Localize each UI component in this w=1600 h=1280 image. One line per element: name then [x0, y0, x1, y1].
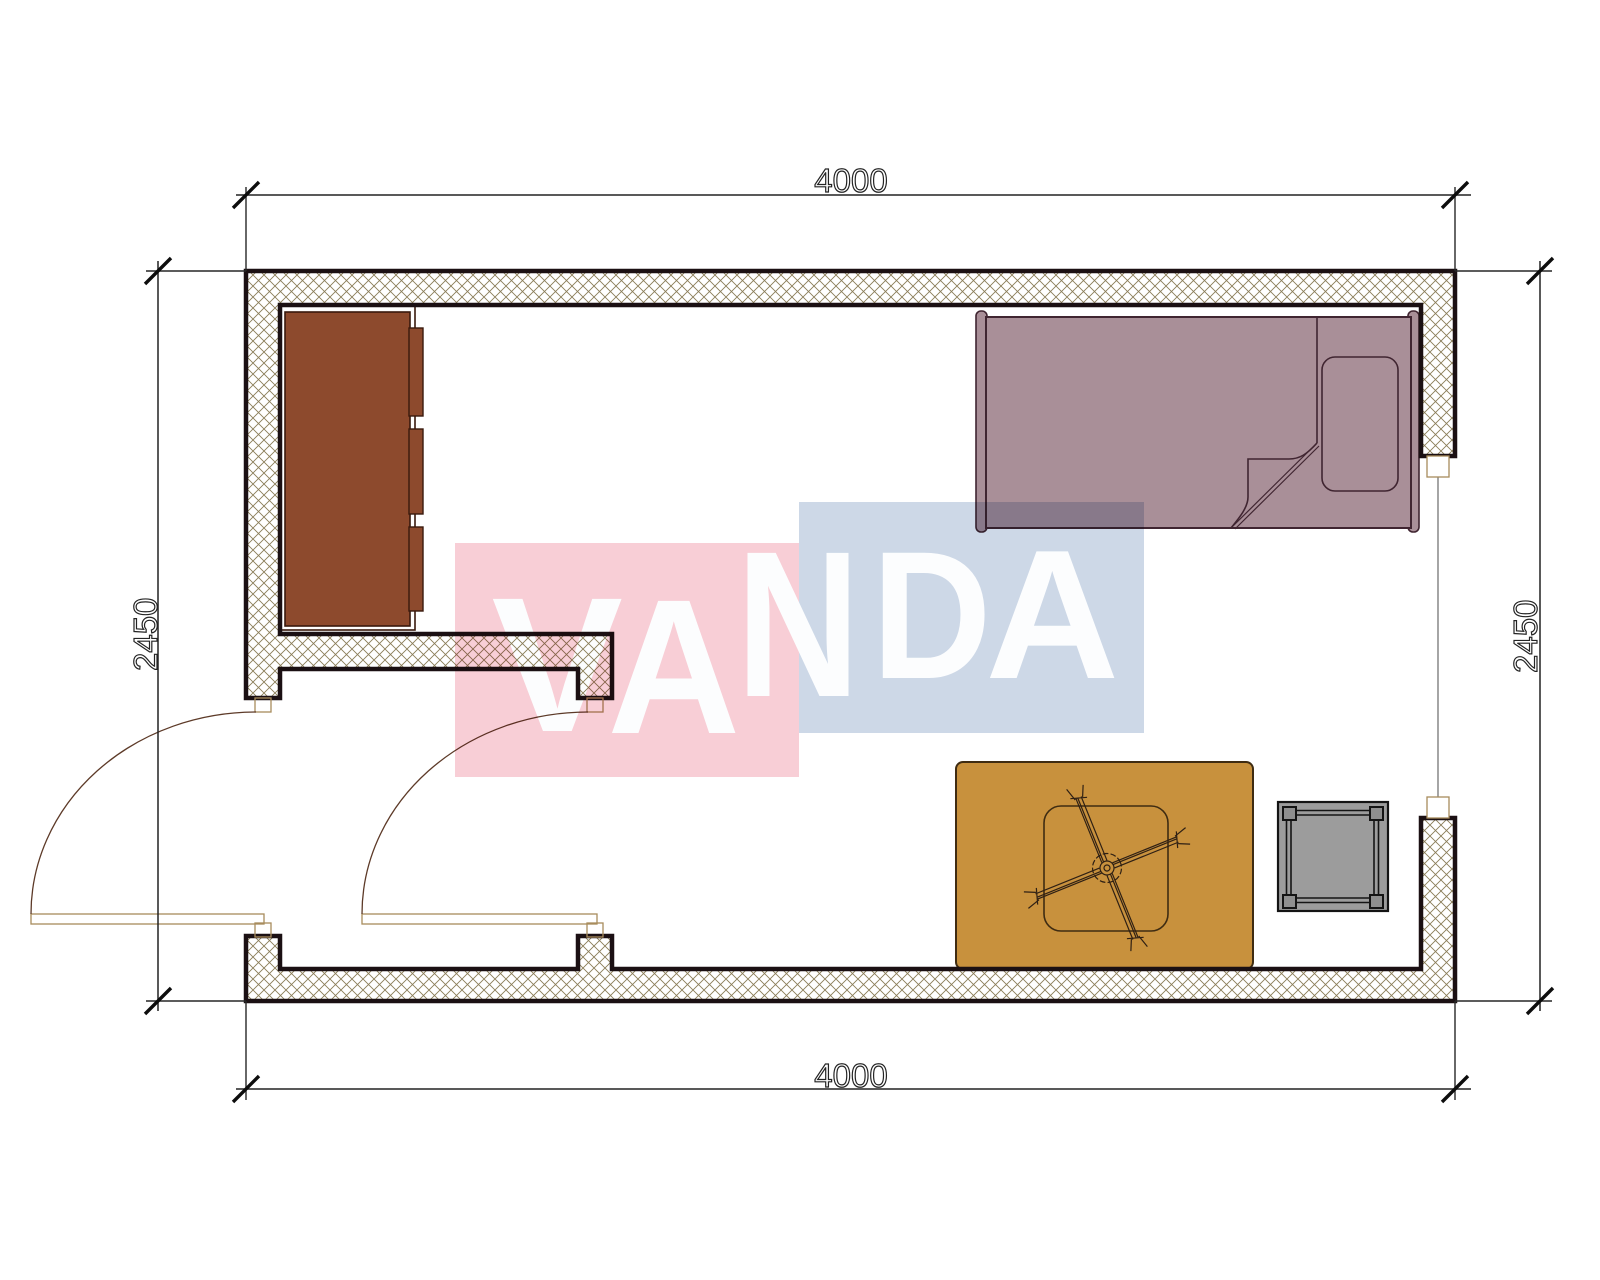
svg-text:A: A — [607, 559, 740, 773]
svg-text:2450: 2450 — [1507, 600, 1544, 673]
svg-text:D: D — [872, 513, 992, 717]
svg-text:4000: 4000 — [814, 162, 887, 199]
svg-text:A: A — [985, 513, 1119, 718]
svg-text:4000: 4000 — [814, 1057, 887, 1094]
svg-text:2450: 2450 — [127, 598, 164, 671]
svg-text:N: N — [736, 508, 860, 740]
